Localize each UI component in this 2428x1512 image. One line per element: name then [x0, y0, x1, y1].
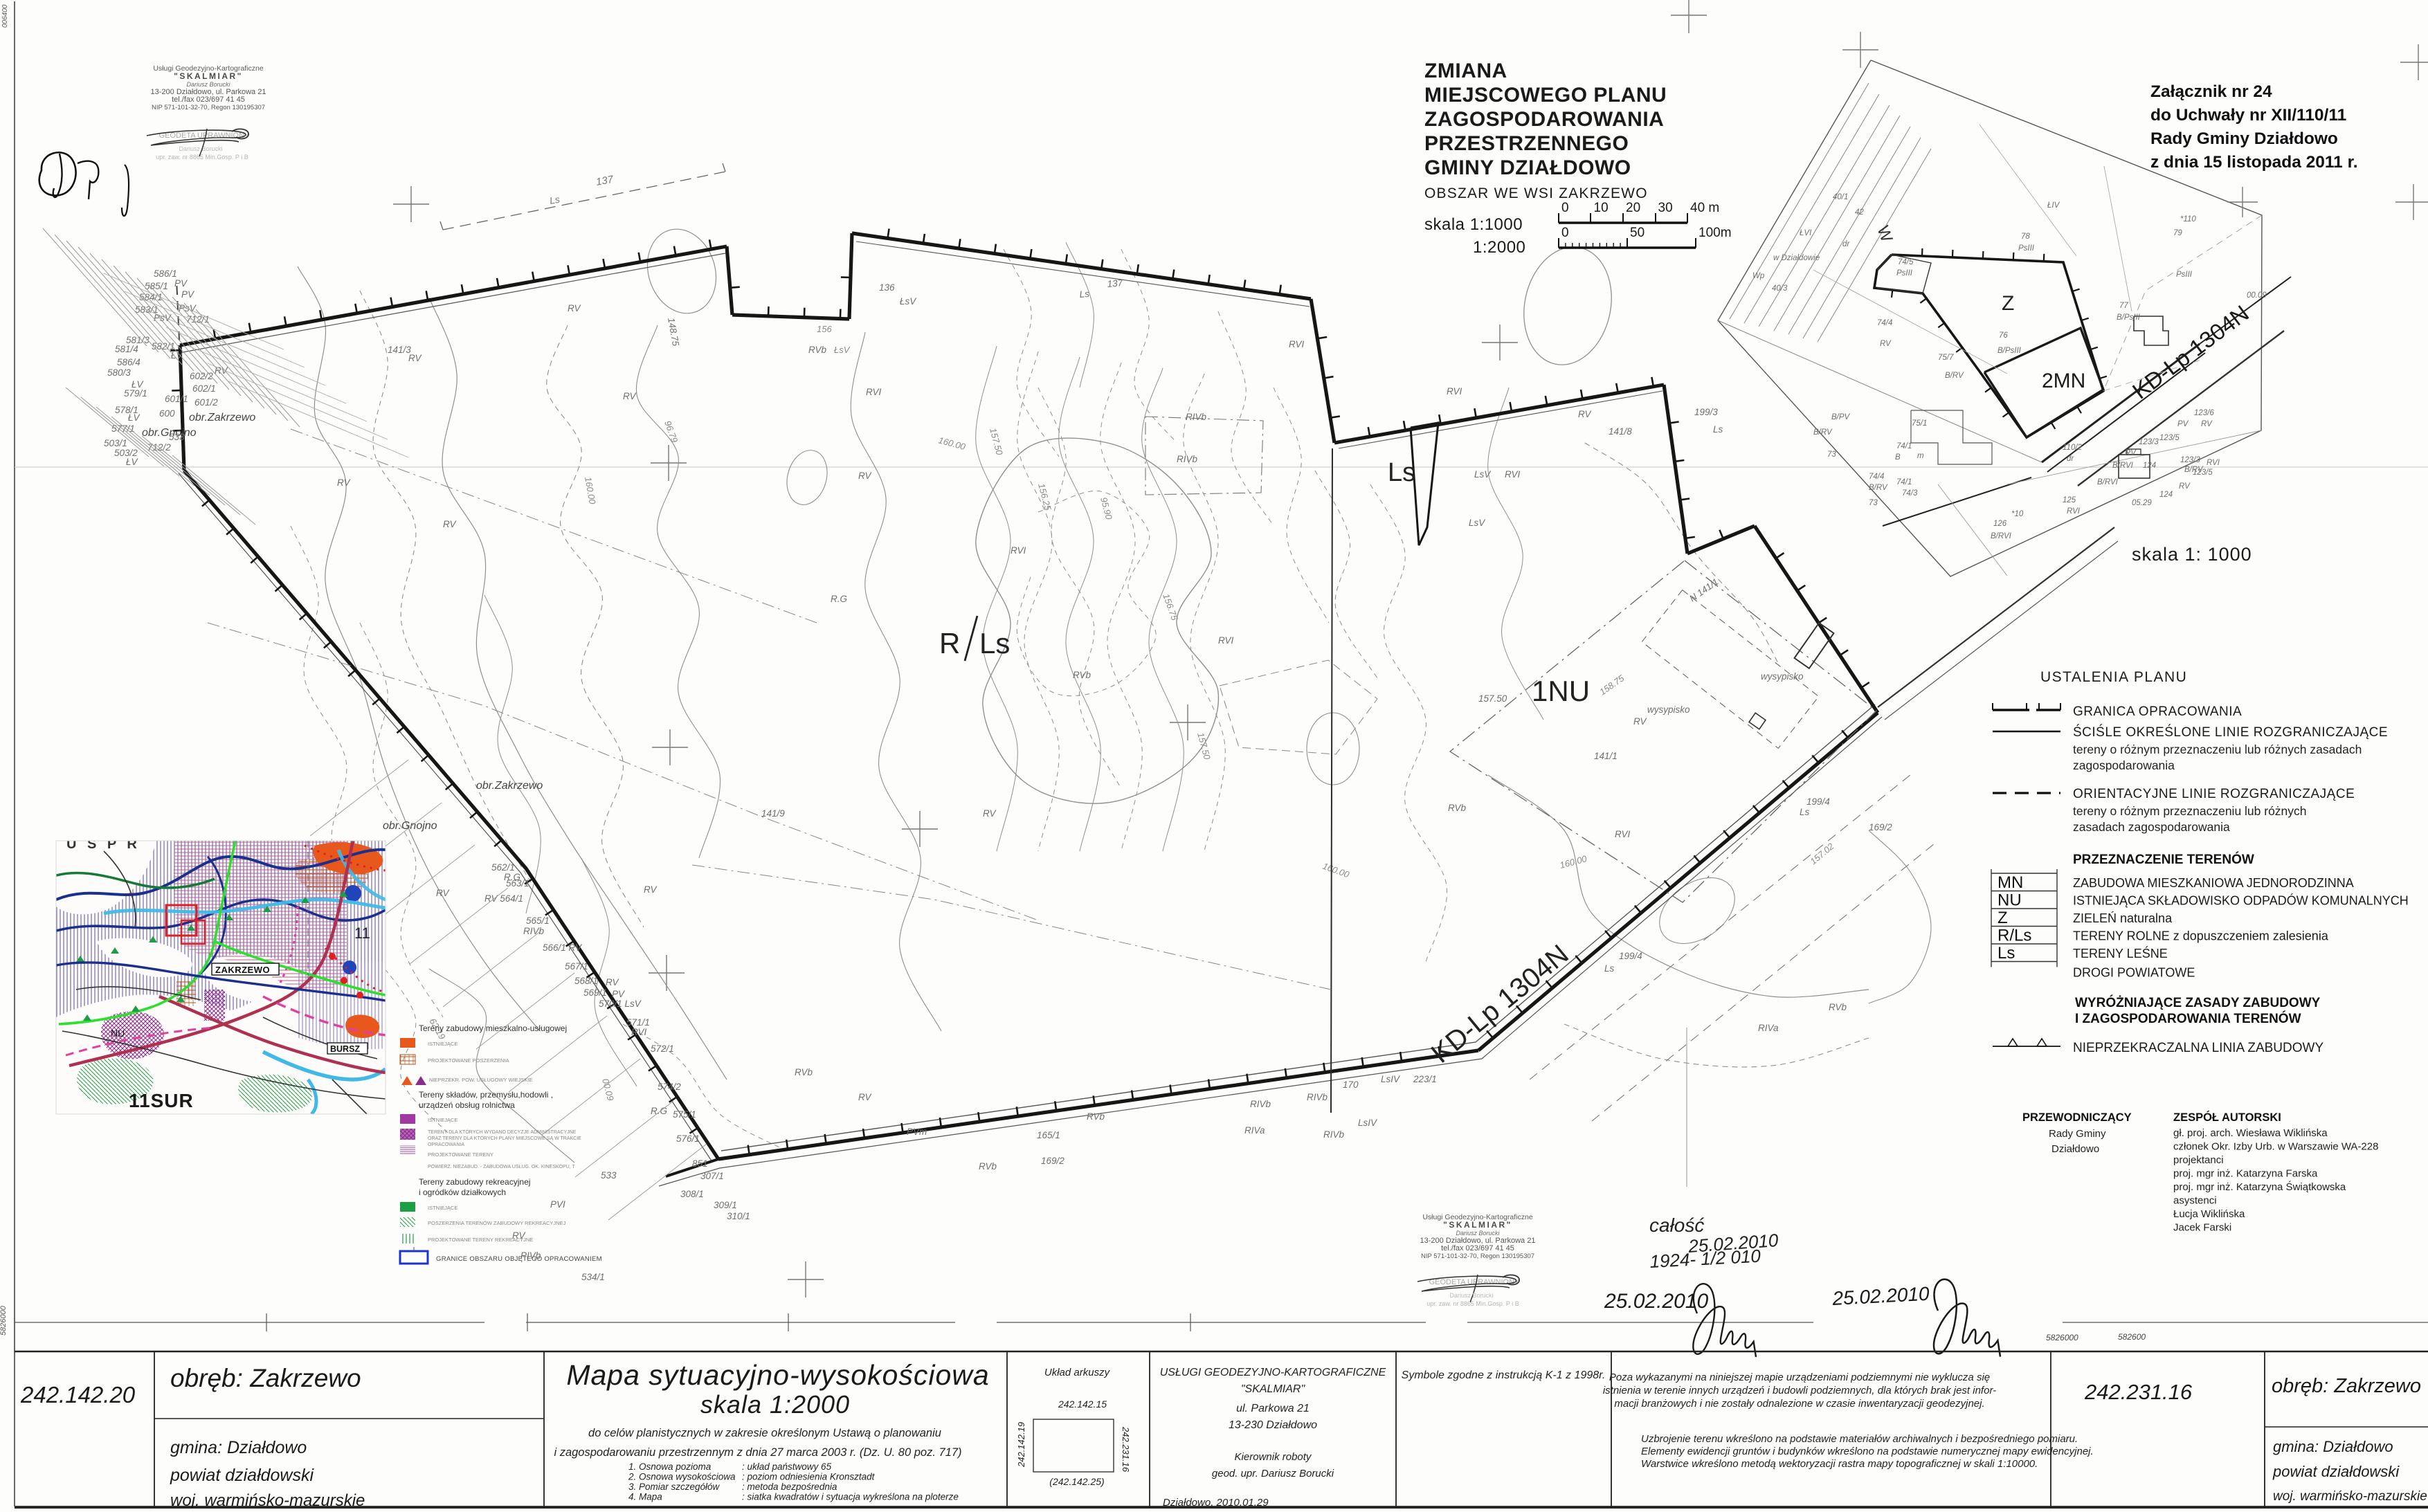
svg-text:25.02.2010: 25.02.2010	[1604, 1290, 1708, 1313]
svg-text:580/3: 580/3	[107, 367, 131, 378]
svg-text:wysypisko: wysypisko	[1761, 671, 1804, 682]
svg-text:B/RV: B/RV	[1869, 484, 1888, 492]
svg-text:obr.Zakrzewo: obr.Zakrzewo	[476, 780, 543, 792]
svg-text:PV: PV	[2177, 420, 2189, 428]
svg-text:NIP 571-101-32-70, Regon 13019: NIP 571-101-32-70, Regon 130195307	[1421, 1253, 1534, 1260]
svg-text:100m: 100m	[1698, 226, 1732, 240]
svg-text:RV 564/1: RV 564/1	[484, 893, 523, 904]
svg-text:223/1: 223/1	[1413, 1074, 1437, 1084]
svg-text:Ls: Ls	[549, 194, 561, 206]
svg-text:zagospodarowania: zagospodarowania	[2073, 758, 2175, 772]
svg-text:B/RVI: B/RVI	[1991, 532, 2012, 540]
svg-text:skala 1:1000: skala 1:1000	[1424, 215, 1523, 234]
svg-text:3. Pomiar szczegółów: 3. Pomiar szczegółów	[628, 1482, 721, 1492]
svg-text:600: 600	[159, 408, 175, 419]
svg-text:141/9: 141/9	[761, 808, 785, 819]
svg-text:73: 73	[1827, 450, 1836, 459]
svg-text:13-230 Działdowo: 13-230 Działdowo	[1229, 1419, 1317, 1431]
svg-text:Z: Z	[2002, 292, 2014, 315]
svg-text:00.09: 00.09	[2247, 291, 2267, 300]
svg-text:RVI: RVI	[1289, 339, 1305, 349]
svg-text:RVI: RVI	[866, 387, 882, 397]
svg-text:307/1: 307/1	[700, 1171, 724, 1181]
svg-text:tel./fax 023/697 41 45: tel./fax 023/697 41 45	[172, 95, 245, 104]
svg-text:141/8: 141/8	[1609, 426, 1632, 437]
svg-text:PVm: PVm	[907, 1127, 927, 1137]
svg-text:79: 79	[2173, 229, 2182, 237]
svg-text:"SKALMIAR": "SKALMIAR"	[1241, 1383, 1306, 1395]
svg-text:woj. warmińsko-mazurskie: woj. warmińsko-mazurskie	[170, 1491, 365, 1509]
svg-text:74/5: 74/5	[1898, 258, 1914, 266]
svg-text:PROJEKTOWANE TERENY: PROJEKTOWANE TERENY	[428, 1151, 493, 1158]
svg-text:PRZESTRZENNEGO: PRZESTRZENNEGO	[1424, 132, 1629, 155]
svg-text:wysypisko: wysypisko	[1647, 704, 1690, 715]
svg-text:B/PsIII: B/PsIII	[2117, 313, 2141, 322]
svg-text:RIVa: RIVa	[1758, 1023, 1779, 1033]
svg-text:RIVb: RIVb	[1307, 1092, 1328, 1102]
svg-text:579/1: 579/1	[124, 388, 147, 399]
svg-text:(242.142.25): (242.142.25)	[1049, 1476, 1104, 1487]
svg-text:gmina: Działdowo: gmina: Działdowo	[2273, 1438, 2393, 1455]
svg-text:B/RVI: B/RVI	[2112, 462, 2134, 470]
svg-text:Ls: Ls	[1604, 963, 1615, 974]
svg-text:74/1: 74/1	[1896, 442, 1912, 450]
svg-text:PsIII: PsIII	[2176, 271, 2193, 279]
svg-text:RV: RV	[1880, 340, 1892, 348]
svg-text:I ZAGOSPODAROWANIA TERENÓ: I ZAGOSPODAROWANIA TERENÓW	[2075, 1011, 2301, 1026]
svg-text:75/7: 75/7	[1938, 354, 1954, 362]
svg-text:R.G: R.G	[831, 594, 847, 604]
svg-text:Poza wykazanymi na niniejszej: Poza wykazanymi na niniejszej mapie urzą…	[1609, 1372, 1990, 1383]
svg-text:RVI: RVI	[2067, 507, 2081, 516]
svg-text:WYRÓŻNIAJĄCE ZASADY ZABUDOWY: WYRÓŻNIAJĄCE ZASADY ZABUDOWY	[2075, 995, 2321, 1010]
svg-text:: siatka kwadratów i sytuacja: : siatka kwadratów i sytuacja wykreślona…	[742, 1492, 959, 1502]
svg-text:obr.Zakrzewo: obr.Zakrzewo	[189, 412, 255, 423]
svg-text:571/1: 571/1	[626, 1017, 650, 1028]
svg-text:126: 126	[1993, 520, 2007, 528]
svg-text:ZAKRZEWO: ZAKRZEWO	[215, 965, 270, 975]
svg-text:zasadach zagospodarowania: zasadach zagospodarowania	[2073, 820, 2230, 834]
svg-text:NU: NU	[111, 1028, 125, 1039]
svg-text:PVI: PVI	[550, 1199, 565, 1210]
svg-text:199/4: 199/4	[1806, 796, 1830, 807]
svg-text:GMINY DZIAŁDOWO: GMINY DZIAŁDOWO	[1424, 156, 1631, 179]
svg-text:1. Osnowa pozioma: 1. Osnowa pozioma	[628, 1461, 712, 1472]
svg-text:586/4: 586/4	[117, 357, 141, 367]
svg-text:dr: dr	[2067, 455, 2074, 463]
svg-text:RIVb: RIVb	[1323, 1129, 1345, 1140]
svg-text:0: 0	[1561, 201, 1569, 215]
svg-text:LsIV: LsIV	[1358, 1118, 1378, 1128]
svg-text:242.231.16: 242.231.16	[2084, 1380, 2193, 1404]
svg-text:ZIELEŃ naturalna: ZIELEŃ naturalna	[2073, 911, 2173, 925]
svg-text:170: 170	[1343, 1080, 1359, 1090]
svg-text:BURSZ: BURSZ	[330, 1044, 360, 1054]
svg-text:50: 50	[1630, 226, 1645, 240]
svg-text:GEODETA UPRAWNIONY: GEODETA UPRAWNIONY	[1429, 1278, 1520, 1286]
svg-text:77: 77	[2119, 302, 2128, 310]
svg-text:*10: *10	[2011, 510, 2024, 518]
svg-text:30: 30	[1658, 201, 1673, 215]
svg-text:Uzbrojenie terenu wkreślono na: Uzbrojenie terenu wkreślono na podstawie…	[1641, 1433, 2078, 1445]
svg-text:B/PsIII: B/PsIII	[1997, 347, 2022, 355]
svg-text:199/4: 199/4	[1619, 951, 1642, 961]
svg-text:137: 137	[1107, 277, 1123, 289]
svg-text:568/1: 568/1	[574, 976, 598, 986]
svg-text:534/1: 534/1	[581, 1272, 605, 1282]
svg-text:B: B	[1895, 453, 1901, 462]
svg-text:ZMIANA: ZMIANA	[1424, 60, 1507, 82]
svg-text:RV: RV	[568, 303, 582, 313]
svg-text:Tereny zabudowy rekreacyjnej: Tereny zabudowy rekreacyjnej	[419, 1177, 530, 1187]
svg-text:74/3: 74/3	[1902, 489, 1918, 498]
svg-text:Symbole zgodne z instrukcją K-: Symbole zgodne z instrukcją K-1 z 1998r.	[1402, 1369, 1606, 1381]
svg-text:RVb: RVb	[808, 345, 827, 355]
svg-text:Rady Gminy: Rady Gminy	[2049, 1128, 2106, 1140]
svg-text:w Działdowie: w Działdowie	[1773, 254, 1820, 262]
svg-text:MIEJSCOWEGO PLANU: MIEJSCOWEGO PLANU	[1424, 84, 1667, 107]
svg-text:macji branżowych i nie zostały: macji branżowych i nie zostały odnalezio…	[1614, 1398, 1984, 1410]
svg-text:602/1: 602/1	[192, 383, 216, 394]
svg-text:upr. zaw. nr 8865 Min.Gosp. P: upr. zaw. nr 8865 Min.Gosp. P i B	[156, 154, 248, 161]
svg-text:76: 76	[1999, 331, 2008, 340]
svg-text:POWIERZ. NIEZABUD. - ZABUDOWA: POWIERZ. NIEZABUD. - ZABUDOWA USŁUG. OK.…	[428, 1165, 575, 1169]
svg-text:gmina: Działdowo: gmina: Działdowo	[170, 1438, 307, 1457]
svg-text:ŁIV: ŁIV	[2047, 201, 2060, 210]
svg-text:USTALENIA PLANU: USTALENIA PLANU	[2040, 669, 2187, 685]
svg-text:ORIENTACYJNE LINIE ROZGRANICZ: ORIENTACYJNE LINIE ROZGRANICZAJĄCE	[2073, 787, 2355, 801]
svg-text:42: 42	[1855, 208, 1864, 217]
svg-text:B/RV: B/RV	[2184, 466, 2204, 474]
svg-text:Tereny składów, przemysłu,hodo: Tereny składów, przemysłu,hodowli ,	[419, 1090, 553, 1100]
svg-text:NIEPRZEKRACZALNA LINIA ZABUDOW: NIEPRZEKRACZALNA LINIA ZABUDOWY	[2073, 1041, 2323, 1055]
svg-text:RIVa: RIVa	[1244, 1125, 1265, 1136]
svg-text:tereny o różnym przeznaczen: tereny o różnym przeznaczeniu lub różnyc…	[2073, 804, 2307, 818]
svg-text:obręb: Zakrzewo: obręb: Zakrzewo	[170, 1364, 361, 1392]
svg-text:73: 73	[1869, 499, 1878, 507]
svg-text:POSZERZENIA TERENÓW ZABUDOWY R: POSZERZENIA TERENÓW ZABUDOWY REKREACYJNE…	[428, 1220, 566, 1226]
svg-text:RV: RV	[2179, 482, 2191, 491]
svg-text:169/2: 169/2	[1041, 1156, 1064, 1166]
svg-text:601/2: 601/2	[194, 397, 218, 408]
svg-text:całość: całość	[1649, 1214, 1704, 1236]
svg-text:123/5: 123/5	[2159, 434, 2180, 442]
svg-text:TERENY LEŚNE: TERENY LEŚNE	[2073, 946, 2168, 960]
svg-text:Łucja Wiklińska: Łucja Wiklińska	[2173, 1208, 2245, 1220]
svg-text:Dariusz Borucki: Dariusz Borucki	[186, 81, 230, 88]
svg-text:LsV: LsV	[1469, 518, 1486, 528]
svg-text:11SUR: 11SUR	[129, 1090, 194, 1111]
svg-text:Ls: Ls	[1388, 458, 1415, 487]
svg-text:PRZEZNACZENIE TERENÓW: PRZEZNACZENIE TERENÓW	[2073, 852, 2254, 867]
svg-text:RV: RV	[436, 888, 451, 898]
svg-text:PsIII: PsIII	[2018, 244, 2035, 253]
svg-text:projektanci: projektanci	[2173, 1154, 2224, 1166]
svg-text:Elementy ewidencji gruntów i b: Elementy ewidencji gruntów i budynków wk…	[1641, 1446, 2094, 1457]
svg-text:006400: 006400	[1, 4, 9, 28]
svg-text:74/4: 74/4	[1877, 319, 1892, 327]
svg-text:proj. mgr inż. Katarzyna Świąt: proj. mgr inż. Katarzyna Świątkowska	[2173, 1181, 2346, 1193]
svg-text:562/1: 562/1	[491, 862, 515, 873]
svg-text:Dariusz Borucki: Dariusz Borucki	[179, 145, 222, 152]
svg-text:503/1: 503/1	[104, 438, 127, 448]
svg-text:575/1: 575/1	[673, 1109, 696, 1120]
svg-text:74/1: 74/1	[1896, 478, 1912, 486]
svg-text:ŁVI: ŁVI	[1800, 229, 1812, 237]
svg-text:165/1: 165/1	[1037, 1130, 1060, 1140]
svg-text:Ls: Ls	[1713, 424, 1723, 435]
svg-text:Działdowo: Działdowo	[2051, 1143, 2099, 1155]
svg-text:569/1: 569/1	[583, 987, 607, 998]
svg-text:RV: RV	[1633, 716, 1648, 727]
svg-text:RVI: RVI	[1447, 386, 1462, 397]
svg-text:Mapa sytuacyjno-wysokościowa: Mapa sytuacyjno-wysokościowa	[566, 1359, 989, 1391]
svg-text:z dnia 15 listopada 2011 r.: z dnia 15 listopada 2011 r.	[2150, 153, 2358, 172]
svg-text:i zagospodarowaniu przestrzenn: i zagospodarowaniu przestrzennym z dnia …	[554, 1446, 961, 1459]
svg-text:10: 10	[1594, 201, 1609, 215]
svg-text:533: 533	[601, 1170, 617, 1181]
svg-text:RV: RV	[443, 519, 457, 529]
svg-text:576/1: 576/1	[676, 1133, 700, 1144]
svg-text:NU: NU	[1997, 891, 2022, 910]
svg-text:ISTNIEJĄCE: ISTNIEJĄCE	[428, 1205, 457, 1211]
svg-text:PROJEKTOWANE TERENY REKREACYJN: PROJEKTOWANE TERENY REKREACYJNE	[428, 1237, 533, 1243]
svg-text:ISTNIEJĄCA SKŁADOWISKO ODPADÓ: ISTNIEJĄCA SKŁADOWISKO ODPADÓW KOMUNALNY…	[2073, 893, 2409, 908]
svg-text:ZESPÓŁ AUTORSKI: ZESPÓŁ AUTORSKI	[2173, 1111, 2281, 1124]
svg-text:78: 78	[2021, 233, 2030, 241]
svg-text:PV: PV	[181, 289, 195, 300]
svg-text:woj. warmińsko-mazurskie: woj. warmińsko-mazurskie	[2273, 1489, 2427, 1504]
svg-text:TERENY ROLNE z dopuszczeniem: TERENY ROLNE z dopuszczeniem zalesienia	[2073, 929, 2329, 943]
svg-text:PV: PV	[612, 989, 626, 999]
svg-text:Ls: Ls	[1079, 289, 1090, 300]
svg-text:RVI: RVI	[1615, 829, 1631, 839]
svg-text:MN: MN	[1997, 873, 2023, 892]
svg-text:ISTNIEJĄCE: ISTNIEJĄCE	[428, 1041, 457, 1047]
svg-text:RVb: RVb	[979, 1161, 997, 1172]
svg-text:członek Okr. Izby Urb. w Warsz: członek Okr. Izby Urb. w Warszawie WA-22…	[2173, 1141, 2378, 1153]
svg-text:570/1 LsV: 570/1 LsV	[599, 999, 642, 1009]
svg-text:40/3: 40/3	[1772, 284, 1788, 293]
svg-text:565/1: 565/1	[526, 916, 550, 926]
svg-text:Ls: Ls	[1800, 807, 1810, 817]
svg-text:Wp: Wp	[1752, 272, 1765, 280]
svg-text:R: R	[939, 627, 960, 659]
svg-text:125: 125	[2063, 496, 2076, 504]
svg-text:RV: RV	[858, 471, 873, 481]
svg-text:5826000: 5826000	[2046, 1333, 2078, 1342]
svg-text:: poziom odniesienia Kronsztad: : poziom odniesienia Kronsztadt	[742, 1472, 876, 1482]
svg-text:308/1: 308/1	[680, 1189, 704, 1199]
svg-text:powiat działdowski: powiat działdowski	[2272, 1463, 2400, 1480]
svg-text:Rady Gminy Działdowo: Rady Gminy Działdowo	[2150, 129, 2338, 148]
svg-text:: układ państwowy 65: : układ państwowy 65	[742, 1461, 832, 1472]
svg-text:Z: Z	[1997, 909, 2008, 927]
svg-text:123/3: 123/3	[2139, 438, 2159, 446]
svg-text:geod. upr. Dariusz Borucki: geod. upr. Dariusz Borucki	[1212, 1468, 1334, 1479]
svg-text:2MN: 2MN	[2042, 370, 2085, 392]
svg-text:RVI: RVI	[1011, 545, 1026, 556]
svg-text:dr: dr	[1842, 240, 1850, 248]
svg-text:asystenci: asystenci	[2173, 1195, 2217, 1207]
svg-text:572/1: 572/1	[651, 1044, 674, 1054]
svg-text:RV: RV	[2201, 420, 2213, 428]
svg-text:RIVb: RIVb	[1177, 454, 1198, 464]
svg-text:RIVb: RIVb	[1186, 412, 1207, 422]
svg-text:5826000: 5826000	[0, 1305, 8, 1336]
svg-text:40/1: 40/1	[1833, 193, 1848, 201]
svg-text:242.142.20: 242.142.20	[20, 1382, 136, 1408]
svg-text:RVb: RVb	[1448, 803, 1467, 813]
svg-text:ŁsV: ŁsV	[900, 296, 917, 307]
svg-text:obr.Gnojno: obr.Gnojno	[383, 820, 437, 832]
svg-text:R/Ls: R/Ls	[1997, 927, 2031, 945]
svg-text:05.29: 05.29	[2132, 499, 2152, 507]
svg-text:40 m: 40 m	[1690, 201, 1719, 215]
svg-text:169/2: 169/2	[1869, 822, 1892, 832]
svg-text:110/2: 110/2	[2063, 444, 2083, 452]
svg-text:RV: RV	[858, 1092, 873, 1102]
svg-text:Ls: Ls	[1997, 944, 2015, 963]
svg-text:RV: RV	[2125, 449, 2137, 457]
svg-text:NIP 571-101-32-70, Regon 13019: NIP 571-101-32-70, Regon 130195307	[152, 104, 265, 111]
svg-text:156: 156	[817, 324, 832, 334]
svg-text:GRANICE OBSZARU OBJĘTEGO OPRAC: GRANICE OBSZARU OBJĘTEGO OPRACOWANIEM	[436, 1255, 602, 1263]
svg-text:OPRACOWANIA: OPRACOWANIA	[428, 1142, 464, 1147]
svg-text:Ls: Ls	[979, 627, 1010, 659]
svg-text:567/1: 567/1	[565, 961, 588, 972]
svg-text:123/6: 123/6	[2194, 409, 2214, 417]
svg-text:PV: PV	[174, 278, 188, 289]
svg-text:LsIV: LsIV	[1381, 1074, 1401, 1084]
svg-text:obręb: Zakrzewo: obręb: Zakrzewo	[2272, 1375, 2421, 1397]
svg-text:"SKALMIAR": "SKALMIAR"	[1443, 1220, 1512, 1230]
svg-text:DROGI POWIATOWE: DROGI POWIATOWE	[2073, 966, 2195, 980]
svg-text:74/4: 74/4	[1869, 473, 1884, 481]
svg-text:601/1: 601/1	[165, 394, 188, 404]
svg-text:RVb: RVb	[795, 1067, 813, 1077]
svg-text:skala 1:2000: skala 1:2000	[700, 1390, 850, 1419]
svg-text:RVb: RVb	[1073, 670, 1091, 680]
svg-text:585/1: 585/1	[145, 281, 168, 291]
svg-text:RVb: RVb	[1829, 1002, 1847, 1012]
svg-text:USŁUGI GEODEZYJNO-KARTOGRAFICZ: USŁUGI GEODEZYJNO-KARTOGRAFICZNE	[1160, 1367, 1386, 1378]
svg-text:ZABUDOWA MIESZKANIOWA JEDNORO: ZABUDOWA MIESZKANIOWA JEDNORODZINNA	[2073, 876, 2354, 890]
svg-text:157.50: 157.50	[1478, 693, 1507, 704]
svg-text:RV: RV	[623, 391, 637, 401]
svg-text:GRANICA OPRACOWANIA: GRANICA OPRACOWANIA	[2073, 704, 2242, 719]
svg-text:141/3: 141/3	[388, 345, 411, 355]
svg-text:309/1: 309/1	[714, 1200, 737, 1210]
svg-text:ŁV: ŁV	[126, 457, 139, 467]
svg-text:124: 124	[2159, 491, 2173, 499]
svg-text:RV: RV	[1578, 409, 1593, 419]
svg-text:ŁV: ŁV	[128, 412, 141, 423]
svg-text:RVb: RVb	[1087, 1111, 1105, 1122]
svg-text:RV: RV	[606, 977, 620, 987]
svg-text:712/1: 712/1	[186, 314, 210, 325]
svg-text:242.142.15: 242.142.15	[1058, 1399, 1107, 1410]
svg-text:tereny o różnym przeznaczeniu: tereny o różnym przeznaczeniu lub różnyc…	[2073, 743, 2362, 756]
svg-text:powiat działdowski: powiat działdowski	[170, 1466, 314, 1485]
svg-text:310/1: 310/1	[727, 1211, 750, 1221]
svg-text:ul. Parkowa 21: ul. Parkowa 21	[1236, 1403, 1310, 1414]
svg-text:Dariusz Borucki: Dariusz Borucki	[1456, 1230, 1500, 1237]
svg-text:B/RV: B/RV	[1813, 428, 1833, 437]
svg-text:141/1: 141/1	[1594, 751, 1618, 761]
svg-text:563/1: 563/1	[506, 878, 529, 889]
svg-text:242.142.19: 242.142.19	[1016, 1422, 1026, 1468]
svg-text:ŁsV: ŁsV	[834, 345, 851, 355]
svg-text:PsIII: PsIII	[1896, 269, 1913, 277]
svg-text:Tereny zabudowy mieszkalno-usł: Tereny zabudowy mieszkalno-usługowej	[419, 1023, 567, 1033]
svg-text:tel./fax 023/697 41 45: tel./fax 023/697 41 45	[1441, 1244, 1514, 1253]
svg-text:Załącznik nr 24: Załącznik nr 24	[2150, 82, 2272, 101]
svg-text:Kierownik roboty: Kierownik roboty	[1235, 1451, 1312, 1463]
svg-text:582600: 582600	[2118, 1332, 2146, 1342]
svg-text:m: m	[1917, 452, 1924, 460]
svg-text:RV: RV	[644, 884, 658, 895]
svg-text:566/1 RV: 566/1 RV	[543, 942, 583, 953]
svg-text:574/2: 574/2	[658, 1082, 681, 1092]
svg-text:istnienia w terenie innych urz: istnienia w terenie innych urządzeń i bu…	[1603, 1385, 1996, 1396]
svg-text:851: 851	[692, 1158, 708, 1169]
svg-text:OBSZAR WE WSI ZAKRZEWO: OBSZAR WE WSI ZAKRZEWO	[1424, 185, 1648, 201]
svg-text:*110: *110	[2180, 215, 2196, 224]
svg-text:1:2000: 1:2000	[1473, 238, 1525, 257]
svg-text:RV: RV	[337, 477, 352, 488]
svg-text:PROJEKTOWANE POSZERZENIA: PROJEKTOWANE POSZERZENIA	[428, 1057, 509, 1064]
svg-text:PRZEWODNICZĄCY: PRZEWODNICZĄCY	[2022, 1111, 2132, 1124]
svg-text:upr. zaw. nr 8865 Min.Gosp. P: upr. zaw. nr 8865 Min.Gosp. P i B	[1426, 1300, 1519, 1307]
svg-text:RVI: RVI	[1218, 635, 1234, 646]
svg-text:TERENY DLA KTÓRYCH WYDANO DEC: TERENY DLA KTÓRYCH WYDANO DECYZJE ADMINI…	[428, 1129, 577, 1135]
svg-text:1NU: 1NU	[1532, 675, 1590, 707]
svg-text:do celów planistycznych w zakr: do celów planistycznych w zakresie okreś…	[588, 1427, 941, 1439]
svg-text:"SKALMIAR": "SKALMIAR"	[174, 71, 243, 81]
svg-text:ISTNIEJĄCE: ISTNIEJĄCE	[428, 1117, 457, 1123]
svg-text:75/1: 75/1	[1912, 419, 1927, 428]
svg-text:242.231.16: 242.231.16	[1121, 1426, 1131, 1473]
svg-text:RVI: RVI	[1505, 469, 1521, 480]
svg-text:Układ arkuszy: Układ arkuszy	[1044, 1367, 1111, 1378]
svg-text:136: 136	[879, 282, 895, 293]
svg-text:586/1: 586/1	[154, 268, 177, 279]
svg-text:B/RV: B/RV	[1945, 372, 1964, 380]
svg-text:RV: RV	[983, 808, 997, 819]
svg-text:199/3: 199/3	[1694, 407, 1718, 417]
svg-text:B/RVI: B/RVI	[2097, 478, 2119, 486]
svg-text:Działdowo, 2010.01.29: Działdowo, 2010.01.29	[1163, 1497, 1269, 1509]
svg-text:do Uchwały nr XII/110/11: do Uchwały nr XII/110/11	[2150, 106, 2346, 125]
svg-text:urządzeń obsług rolnictwa: urządzeń obsług rolnictwa	[419, 1100, 515, 1110]
svg-text:ŚCIŚLE OKREŚLONE LINIE ROZG: ŚCIŚLE OKREŚLONE LINIE ROZGRANICZAJĄCE	[2073, 725, 2388, 740]
svg-text:NIEPRZEKR. POW. USŁUGOWY WIEJS: NIEPRZEKR. POW. USŁUGOWY WIEJSKIE	[429, 1077, 532, 1083]
svg-text:0: 0	[1561, 226, 1569, 240]
svg-text:4. Mapa: 4. Mapa	[628, 1492, 662, 1502]
svg-text:Jacek Farski: Jacek Farski	[2173, 1222, 2231, 1234]
svg-text:124: 124	[2143, 462, 2156, 470]
svg-text:123/3: 123/3	[2180, 456, 2200, 464]
svg-text:RIVb: RIVb	[1250, 1099, 1271, 1109]
svg-text:RVI: RVI	[2207, 459, 2220, 467]
svg-text:Warstwice wkreślono metodą wek: Warstwice wkreślono metodą wektoryzacji …	[1641, 1458, 2038, 1470]
svg-text:LsV: LsV	[1474, 469, 1492, 480]
svg-text:gł. proj. arch. Wiesława Wik: gł. proj. arch. Wiesława Wiklińska	[2173, 1127, 2328, 1139]
svg-text:: metoda bezpośrednia: : metoda bezpośrednia	[742, 1482, 837, 1492]
svg-text:ZAGOSPODAROWANIA: ZAGOSPODAROWANIA	[1424, 108, 1664, 131]
svg-text:proj. mgr inż. Katarzyna Farsk: proj. mgr inż. Katarzyna Farska	[2173, 1168, 2318, 1180]
